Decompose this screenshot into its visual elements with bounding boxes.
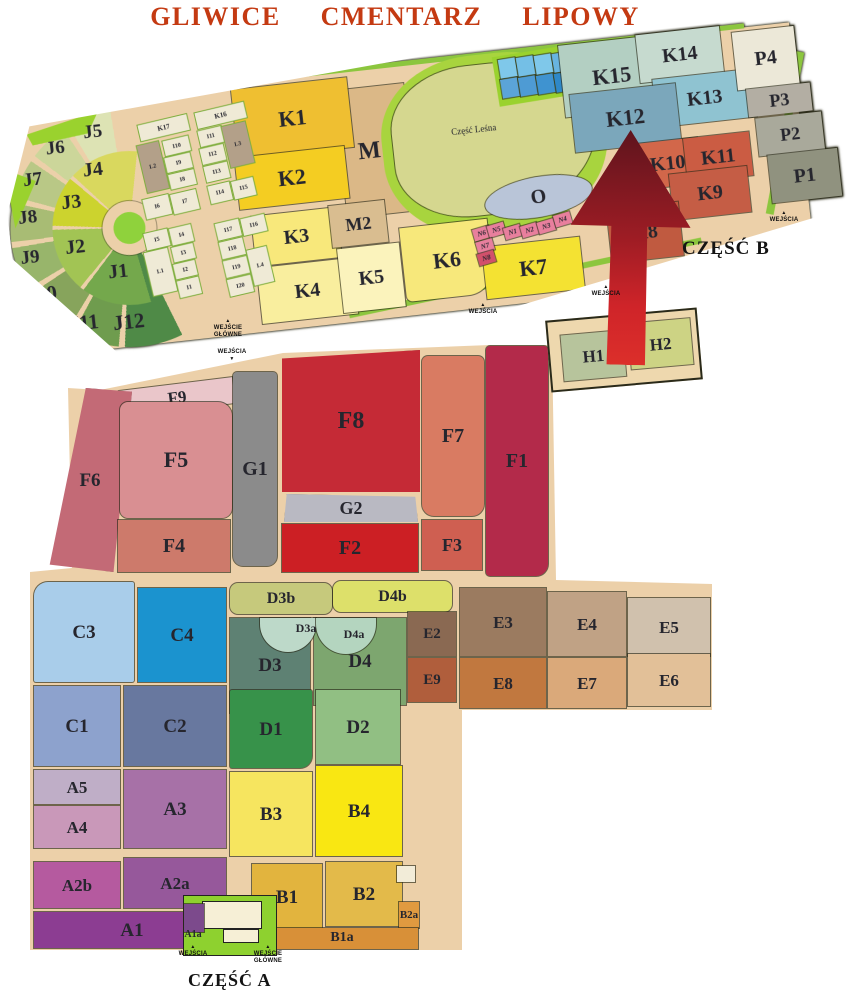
section-K7[interactable]: K7 bbox=[482, 237, 585, 299]
section-label: N8 bbox=[481, 253, 491, 262]
section-D3b[interactable]: D3b bbox=[230, 583, 332, 614]
entrance-marker: ▲WEJŚCIEGŁÓWNE bbox=[200, 318, 256, 338]
section-C1[interactable]: C1 bbox=[34, 686, 120, 766]
chapel-annex bbox=[224, 930, 258, 942]
section-label: I17 bbox=[224, 226, 234, 234]
section-A2b[interactable]: A2b bbox=[34, 862, 120, 908]
entrance-marker: ▲WEJŚCIA bbox=[756, 210, 812, 224]
section-F8[interactable]: F8 bbox=[282, 350, 420, 492]
section-label: B3 bbox=[260, 805, 282, 824]
section-label: I5 bbox=[154, 236, 161, 243]
section-label: K6 bbox=[432, 248, 462, 273]
section-label: G2 bbox=[339, 499, 362, 517]
section-label: I11 bbox=[206, 133, 215, 141]
section-label: I14 bbox=[215, 189, 225, 197]
section-label: A2a bbox=[160, 875, 189, 892]
entrance-label: GŁÓWNE bbox=[214, 332, 242, 339]
section-label: I4 bbox=[178, 231, 185, 238]
section-label: E6 bbox=[659, 672, 679, 689]
section-label: D4b bbox=[378, 589, 406, 605]
entrance-marker: ▲WEJŚCIA bbox=[455, 302, 511, 316]
section-E7[interactable]: E7 bbox=[548, 658, 626, 708]
section-label: J8 bbox=[17, 207, 38, 228]
section-label: J4 bbox=[82, 159, 104, 181]
section-J5[interactable]: J5 bbox=[74, 119, 112, 145]
section-label: F8 bbox=[338, 409, 365, 433]
arrow-up-icon: ▲ bbox=[603, 284, 608, 291]
section-A3[interactable]: A3 bbox=[124, 770, 226, 848]
section-B2[interactable]: B2 bbox=[326, 862, 402, 926]
section-label: I1 bbox=[186, 284, 193, 291]
section-F2[interactable]: F2 bbox=[282, 524, 418, 572]
section-label: K11 bbox=[700, 145, 736, 169]
section-G1[interactable]: G1 bbox=[233, 372, 277, 566]
section-label: A4 bbox=[67, 819, 88, 836]
small-white-building bbox=[397, 866, 415, 882]
section-label: F5 bbox=[164, 449, 188, 471]
section-label: F6 bbox=[79, 471, 100, 490]
entrance-label: WEJŚCIA bbox=[469, 309, 498, 316]
section-label: F4 bbox=[163, 536, 185, 556]
section-label: K9 bbox=[696, 182, 724, 205]
section-B3[interactable]: B3 bbox=[230, 772, 312, 856]
section-D4a[interactable]: D4a bbox=[334, 626, 374, 642]
section-label: A5 bbox=[67, 779, 88, 796]
entrance-marker: ▲WEJŚCIA bbox=[578, 284, 634, 298]
section-label: F1 bbox=[506, 451, 528, 471]
section-M2[interactable]: M2 bbox=[328, 200, 388, 248]
entrance-marker: WEJŚCIA▼ bbox=[204, 349, 260, 363]
section-label: M2 bbox=[344, 213, 372, 234]
section-label: I12 bbox=[208, 151, 218, 159]
section-J1[interactable]: J1 bbox=[99, 259, 137, 285]
section-label: K1 bbox=[277, 106, 307, 131]
section-C2[interactable]: C2 bbox=[124, 686, 226, 766]
section-K5[interactable]: K5 bbox=[337, 243, 406, 313]
section-label: D3b bbox=[267, 591, 295, 607]
section-E5[interactable]: E5 bbox=[628, 598, 710, 656]
section-label: P1 bbox=[793, 164, 817, 186]
section-label: E7 bbox=[577, 675, 597, 692]
section-label: K5 bbox=[358, 266, 386, 289]
small-plot-cell bbox=[516, 55, 536, 76]
section-B4[interactable]: B4 bbox=[316, 766, 402, 856]
section-E2[interactable]: E2 bbox=[408, 612, 456, 656]
section-K9[interactable]: K9 bbox=[669, 166, 752, 220]
part-b-label: CZĘŚĆ B bbox=[682, 238, 770, 260]
arrow-up-icon: ▲ bbox=[265, 944, 270, 951]
section-E4[interactable]: E4 bbox=[548, 592, 626, 656]
section-J8[interactable]: J8 bbox=[9, 204, 47, 230]
section-label: K4 bbox=[294, 280, 322, 303]
section-E3[interactable]: E3 bbox=[460, 588, 546, 656]
section-label: E3 bbox=[493, 614, 513, 631]
chapel-building bbox=[203, 902, 261, 928]
section-label: J9 bbox=[20, 247, 41, 268]
section-label: B2a bbox=[400, 910, 418, 921]
section-label: I2 bbox=[182, 266, 189, 273]
section-label: I8 bbox=[179, 176, 186, 183]
section-label: D2 bbox=[346, 718, 369, 737]
section-label: C2 bbox=[163, 717, 186, 736]
section-label: L4 bbox=[256, 262, 264, 269]
section-label: A2b bbox=[62, 877, 92, 894]
section-label: D4a bbox=[344, 628, 365, 640]
section-C4[interactable]: C4 bbox=[138, 588, 226, 682]
small-plot-cell bbox=[500, 77, 520, 98]
section-label: J7 bbox=[22, 169, 43, 190]
section-label: F2 bbox=[339, 538, 361, 558]
section-label: J12 bbox=[112, 309, 146, 333]
section-label: K15 bbox=[591, 63, 632, 89]
section-A1a[interactable]: A1a bbox=[176, 928, 210, 941]
section-label: P4 bbox=[754, 47, 778, 69]
section-label: J2 bbox=[64, 236, 86, 258]
section-label: N5 bbox=[491, 225, 501, 234]
section-label: I9 bbox=[175, 159, 182, 166]
section-label: N4 bbox=[558, 215, 568, 224]
section-label: L2 bbox=[149, 163, 157, 170]
section-D1[interactable]: D1 bbox=[230, 690, 312, 768]
small-plot-cell bbox=[518, 75, 538, 96]
section-label: D1 bbox=[259, 720, 282, 739]
section-label: I3 bbox=[180, 249, 187, 256]
entrance-marker: ▲WEJŚCIEGŁÓWNE bbox=[240, 944, 296, 964]
entrance-label: GŁÓWNE bbox=[254, 958, 282, 965]
section-F4[interactable]: F4 bbox=[118, 520, 230, 572]
section-label: J1 bbox=[107, 260, 129, 282]
arrow-up-icon: ▲ bbox=[225, 318, 230, 325]
section-label: E2 bbox=[423, 627, 441, 642]
section-label: D4 bbox=[348, 652, 371, 671]
section-label: L1 bbox=[156, 268, 164, 275]
section-P4[interactable]: P4 bbox=[732, 26, 800, 90]
arrow-up-icon: ▲ bbox=[480, 302, 485, 309]
section-label: N7 bbox=[480, 242, 490, 251]
section-label: C4 bbox=[170, 626, 193, 645]
section-F5[interactable]: F5 bbox=[120, 402, 232, 518]
section-B1a[interactable]: B1a bbox=[320, 930, 364, 946]
section-label: I19 bbox=[232, 263, 242, 271]
entrance-label: WEJŚCIA bbox=[770, 217, 799, 224]
section-label: O bbox=[529, 186, 548, 208]
section-label: D3 bbox=[258, 656, 281, 675]
section-label: I13 bbox=[212, 168, 222, 176]
section-label: E4 bbox=[577, 616, 597, 633]
section-label: L3 bbox=[234, 141, 242, 148]
section-label: I7 bbox=[182, 198, 189, 205]
section-label: K3 bbox=[283, 225, 311, 248]
section-D3a[interactable]: D3a bbox=[288, 620, 324, 636]
section-label: H2 bbox=[649, 334, 672, 353]
section-label: K12 bbox=[605, 105, 646, 131]
section-F1[interactable]: F1 bbox=[486, 346, 548, 576]
arrow-down-icon: ▼ bbox=[229, 356, 234, 363]
section-label: J5 bbox=[82, 121, 103, 142]
section-label: K17 bbox=[157, 123, 171, 133]
section-label: A1 bbox=[120, 921, 143, 940]
section-label: K16 bbox=[214, 110, 228, 120]
arrow-up-icon: ▲ bbox=[190, 944, 195, 951]
section-label: P3 bbox=[768, 90, 790, 110]
entrance-label: WEJŚCIA bbox=[179, 951, 208, 958]
section-label: N3 bbox=[541, 222, 551, 231]
section-label: C3 bbox=[72, 623, 95, 642]
arrow-up-icon: ▲ bbox=[781, 210, 786, 217]
section-J3[interactable]: J3 bbox=[52, 189, 90, 215]
section-E6[interactable]: E6 bbox=[628, 654, 710, 706]
section-P1[interactable]: P1 bbox=[767, 148, 842, 203]
section-label: N6 bbox=[477, 229, 487, 238]
section-label: H1 bbox=[582, 346, 605, 365]
section-label: E8 bbox=[493, 675, 513, 692]
section-A4[interactable]: A4 bbox=[34, 806, 120, 848]
section-label: I10 bbox=[172, 142, 182, 150]
cemetery-map: GLIWICE CMENTARZ LIPOWY M1Część LeśnaK1K… bbox=[0, 0, 853, 996]
section-A5[interactable]: A5 bbox=[34, 770, 120, 804]
section-label: A1a bbox=[184, 930, 201, 940]
section-label: E5 bbox=[659, 619, 679, 636]
section-label: I16 bbox=[249, 221, 259, 229]
section-label: P2 bbox=[779, 124, 801, 144]
section-label: N2 bbox=[525, 226, 535, 235]
section-label: I20 bbox=[236, 282, 246, 290]
section-label: N1 bbox=[508, 227, 518, 236]
small-plot-cell bbox=[536, 73, 556, 94]
section-J12[interactable]: J12 bbox=[107, 308, 151, 334]
section-D2[interactable]: D2 bbox=[316, 690, 400, 764]
section-label: Część Leśna bbox=[451, 123, 497, 137]
small-plot-cell bbox=[534, 53, 554, 74]
section-label: C1 bbox=[65, 717, 88, 736]
section-label: E9 bbox=[423, 673, 441, 688]
entrance-label: WEJŚCIA bbox=[592, 291, 621, 298]
section-F7[interactable]: F7 bbox=[422, 356, 484, 516]
section-label: A3 bbox=[163, 800, 186, 819]
section-label: K2 bbox=[277, 165, 307, 190]
section-label: F7 bbox=[442, 426, 464, 446]
section-D4b[interactable]: D4b bbox=[333, 581, 452, 612]
section-label: D3a bbox=[296, 622, 317, 634]
section-label: I6 bbox=[154, 203, 161, 210]
section-label: B1 bbox=[276, 888, 298, 907]
section-label: J6 bbox=[45, 137, 66, 158]
part-a-label: CZĘŚĆ A bbox=[188, 970, 272, 991]
section-label: B4 bbox=[348, 802, 370, 821]
section-C3[interactable]: C3 bbox=[34, 582, 134, 682]
section-label: J3 bbox=[60, 191, 82, 213]
section-label: I18 bbox=[228, 244, 238, 252]
section-label: G1 bbox=[242, 459, 268, 479]
section-J2[interactable]: J2 bbox=[56, 234, 94, 260]
entrance-marker: ▲WEJŚCIA bbox=[165, 944, 221, 958]
page-title: GLIWICE CMENTARZ LIPOWY bbox=[0, 2, 790, 32]
section-J6[interactable]: J6 bbox=[36, 135, 74, 161]
section-F3[interactable]: F3 bbox=[422, 520, 482, 570]
section-J7[interactable]: J7 bbox=[13, 166, 51, 192]
section-label: B1a bbox=[330, 931, 353, 945]
section-G2[interactable]: G2 bbox=[284, 494, 418, 522]
section-label: B2 bbox=[353, 885, 375, 904]
section-E8[interactable]: E8 bbox=[460, 658, 546, 708]
section-E9[interactable]: E9 bbox=[408, 658, 456, 702]
section-B2a[interactable]: B2a bbox=[392, 908, 426, 922]
section-label: F3 bbox=[442, 536, 462, 554]
section-label: K7 bbox=[518, 255, 548, 280]
section-label: K13 bbox=[686, 86, 724, 110]
section-label: I15 bbox=[239, 184, 249, 192]
small-plot-cell bbox=[498, 57, 518, 78]
section-label: K14 bbox=[661, 43, 699, 67]
section-J4[interactable]: J4 bbox=[74, 157, 112, 183]
